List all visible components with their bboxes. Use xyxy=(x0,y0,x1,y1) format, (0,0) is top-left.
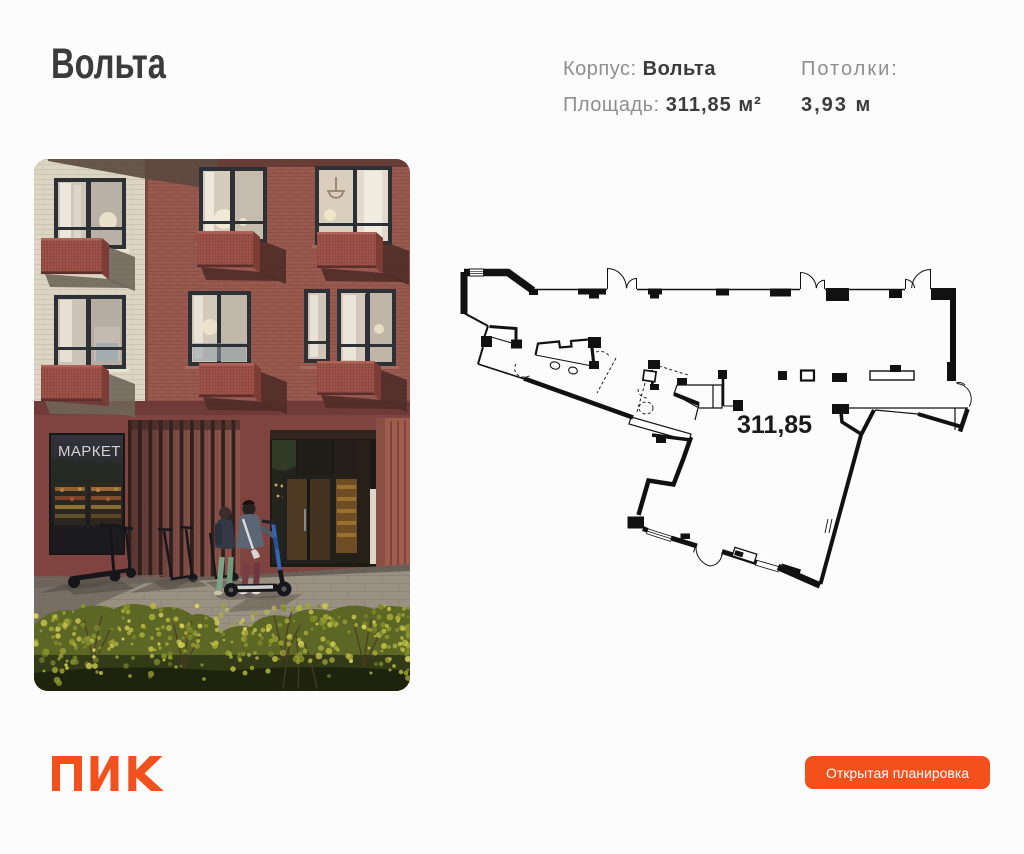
svg-text:МАРКЕТ: МАРКЕТ xyxy=(58,443,121,460)
svg-text:311,85: 311,85 xyxy=(737,411,812,439)
